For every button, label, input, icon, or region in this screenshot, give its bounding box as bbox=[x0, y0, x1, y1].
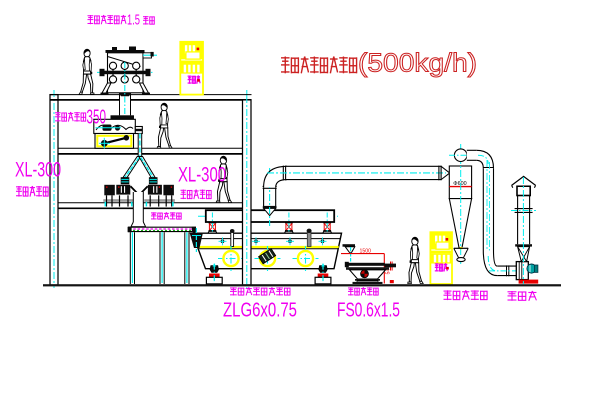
svg-text:Φ600: Φ600 bbox=[453, 181, 466, 187]
svg-text:ZLG6x0.75: ZLG6x0.75 bbox=[223, 299, 297, 322]
svg-text:(500kg/h): (500kg/h) bbox=[358, 48, 477, 78]
svg-text:1.5: 1.5 bbox=[127, 12, 140, 29]
svg-text:1500: 1500 bbox=[360, 249, 372, 255]
svg-text:350: 350 bbox=[87, 107, 107, 129]
svg-text:XL-300: XL-300 bbox=[15, 159, 61, 182]
svg-text:FS0.6x1.5: FS0.6x1.5 bbox=[337, 299, 400, 322]
svg-text:XL-300: XL-300 bbox=[178, 164, 226, 187]
